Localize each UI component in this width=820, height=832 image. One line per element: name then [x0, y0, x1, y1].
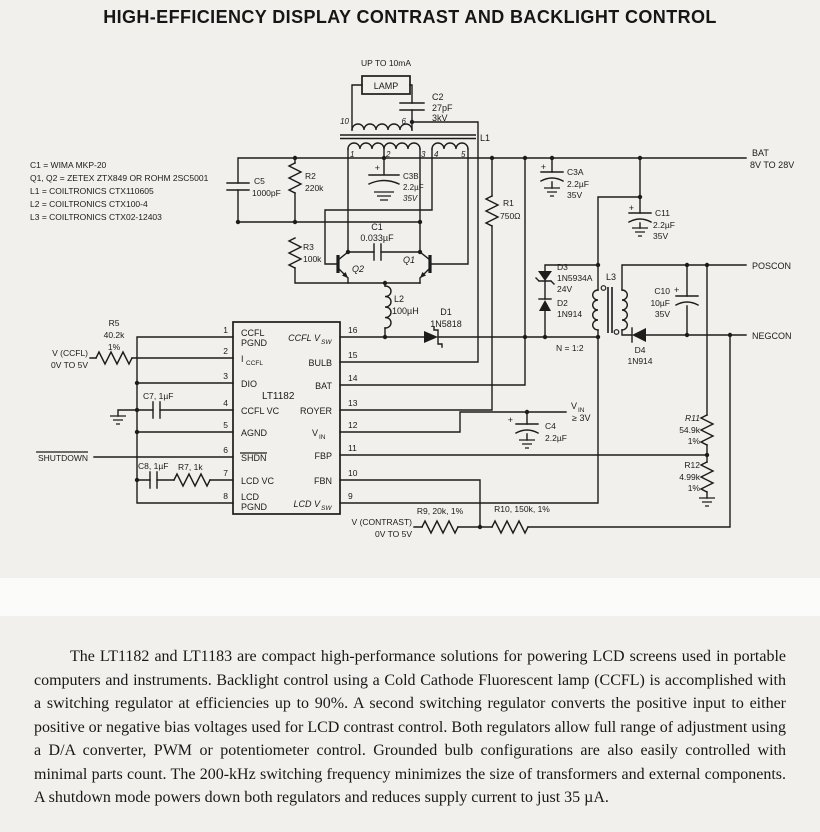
- pin-label: LCD: [241, 492, 260, 502]
- pin-label: LCD VC: [241, 476, 275, 486]
- pin-label: SHDN: [241, 453, 267, 463]
- pin-number: 16: [348, 325, 358, 335]
- ic-pin-numbers-right: 16 15 14 13 12 11 10 9: [348, 325, 358, 501]
- d2-part: 1N914: [557, 309, 582, 319]
- d4-ref: D4: [635, 345, 646, 355]
- r5-ref: R5: [109, 318, 120, 328]
- lamp-current-label: UP TO 10mA: [361, 58, 411, 68]
- description-paragraph: The LT1182 and LT1183 are compact high-p…: [0, 645, 820, 810]
- ic-pin-numbers-left: 1 2 3 4 5 6 7 8: [223, 325, 228, 501]
- schematic: LAMP UP TO 10mA LT1182 1 2 3 4 5 6 7 8 1…: [0, 0, 820, 580]
- poscon-label: POSCON: [752, 261, 791, 271]
- c3b-ref: C3B: [403, 172, 419, 181]
- pin-label-sub: SW: [321, 505, 332, 512]
- r11-ref: R11: [685, 413, 700, 423]
- l2-value: 100µH: [392, 306, 419, 316]
- pin-label-sub: SW: [321, 339, 332, 346]
- r1-value: 750Ω: [500, 211, 521, 221]
- r9-label: R9, 20k, 1%: [417, 506, 464, 516]
- pin-number: 9: [348, 491, 353, 501]
- c8-label: C8, 1µF: [138, 461, 168, 471]
- transistor-q1: [420, 255, 430, 283]
- c4-value: 2.2µF: [545, 433, 567, 443]
- pin-label: CCFL: [241, 328, 265, 338]
- c4-ref: C4: [545, 421, 556, 431]
- l1-pin10: 10: [340, 117, 349, 126]
- pin-label: PGND: [241, 338, 268, 348]
- d1-part: 1N5818: [430, 319, 462, 329]
- ic-pin-labels-right: CCFL V SW BULB BAT ROYER V IN FBP FBN LC…: [288, 333, 332, 512]
- c3b-plus: +: [375, 163, 380, 173]
- page-divider-band: [0, 578, 820, 616]
- l3-ratio: N = 1:2: [556, 343, 584, 353]
- r3-ref: R3: [303, 242, 314, 252]
- d1-ref: D1: [440, 307, 452, 317]
- transistor-q2: [338, 255, 348, 283]
- r12-value: 4.99k: [679, 472, 701, 482]
- l1-pin4: 4: [434, 150, 439, 159]
- phase-dot-icon: [614, 330, 619, 335]
- pin-label: AGND: [241, 428, 268, 438]
- c11-ref: C11: [655, 208, 670, 218]
- vccfl-label: V (CCFL): [52, 348, 88, 358]
- pin-number: 3: [223, 371, 228, 381]
- r3-value: 100k: [303, 254, 322, 264]
- pin-label: I: [241, 354, 244, 364]
- r5-value: 40.2k: [104, 330, 126, 340]
- pin-number: 6: [223, 445, 228, 455]
- vccfl-range: 0V TO 5V: [51, 360, 88, 370]
- pin-label: DIO: [241, 379, 257, 389]
- pin-label-sub: CCFL: [246, 360, 263, 367]
- vcontrast-label: V (CONTRAST): [352, 517, 413, 527]
- l1-pin6: 6: [402, 117, 407, 126]
- note-line: L2 = COILTRONICS CTX100-4: [30, 199, 148, 209]
- transformer-l1: [340, 124, 476, 149]
- c3a-plus: +: [541, 162, 546, 172]
- note-line: L1 = COILTRONICS CTX110605: [30, 186, 154, 196]
- c10-ref: C10: [654, 286, 670, 296]
- l1-pin2: 2: [385, 150, 391, 159]
- l3-ref: L3: [606, 272, 616, 282]
- c10-rating: 35V: [655, 309, 670, 319]
- c2-value: 27pF: [432, 103, 453, 113]
- c11-plus: +: [629, 203, 634, 213]
- negcon-label: NEGCON: [752, 331, 792, 341]
- transformer-l3: [593, 286, 628, 335]
- l1-pin3: 3: [421, 150, 426, 159]
- r11-tol: 1%: [688, 436, 701, 446]
- c3b-value: 2.2µF: [403, 183, 424, 192]
- pin-label-sub: IN: [319, 434, 326, 441]
- lamp-label: LAMP: [374, 81, 399, 91]
- c5-value: 1000pF: [252, 188, 281, 198]
- pin-label: CCFL V: [288, 333, 321, 343]
- pin-label: BAT: [315, 381, 332, 391]
- pin-number: 1: [223, 325, 228, 335]
- d3-rating: 24V: [557, 284, 572, 294]
- diode-d4: [632, 328, 646, 342]
- note-line: Q1, Q2 = ZETEX ZTX849 OR ROHM 2SC5001: [30, 173, 209, 183]
- vcontrast-range: 0V TO 5V: [375, 529, 412, 539]
- note-line: L3 = COILTRONICS CTX02-12403: [30, 212, 162, 222]
- component-labels: C2 27pF 3kV 10 6 1 2 3 4 5 L1 C5 1000pF …: [104, 92, 701, 516]
- c3b-rating: 35V: [403, 194, 418, 203]
- pin-number: 14: [348, 373, 358, 383]
- phase-dot-icon: [601, 286, 606, 291]
- diode-d2: [539, 299, 551, 311]
- inductor-l2: [385, 286, 391, 328]
- parts-notes: C1 = WIMA MKP-20 Q1, Q2 = ZETEX ZTX849 O…: [30, 160, 209, 222]
- c3a-rating: 35V: [567, 190, 582, 200]
- r7-label: R7, 1k: [178, 462, 203, 472]
- r5-tol: 1%: [108, 342, 121, 352]
- pin-number: 10: [348, 468, 358, 478]
- bat-label: BAT: [752, 148, 769, 158]
- r11-value: 54.9k: [679, 425, 701, 435]
- r12-ref: R12: [684, 460, 700, 470]
- c11-value: 2.2µF: [653, 220, 675, 230]
- pin-label: BULB: [308, 358, 332, 368]
- pin-label: FBN: [314, 476, 332, 486]
- c7-label: C7, 1µF: [143, 391, 173, 401]
- c10-value: 10µF: [650, 298, 670, 308]
- ground-symbols: [110, 188, 715, 506]
- d3-part: 1N5934A: [557, 273, 593, 283]
- c1-value: 0.033µF: [360, 233, 394, 243]
- resistor-symbols: [96, 163, 713, 533]
- pin-number: 8: [223, 491, 228, 501]
- pin-label: LCD V: [293, 499, 321, 509]
- c1-ref: C1: [371, 222, 383, 232]
- l1-ref: L1: [480, 133, 490, 143]
- c2-rating: 3kV: [432, 113, 448, 123]
- pin-number: 11: [348, 443, 357, 453]
- pin-number: 15: [348, 350, 358, 360]
- vin-label: V: [571, 401, 577, 411]
- pin-number: 5: [223, 420, 228, 430]
- r10-label: R10, 150k, 1%: [494, 504, 550, 514]
- pin-number: 12: [348, 420, 358, 430]
- pin-number: 2: [223, 346, 228, 356]
- d3-ref: D3: [557, 262, 568, 272]
- c11-rating: 35V: [653, 231, 668, 241]
- note-line: C1 = WIMA MKP-20: [30, 160, 107, 170]
- c2-ref: C2: [432, 92, 444, 102]
- r1-ref: R1: [503, 198, 514, 208]
- c4-plus: +: [508, 415, 513, 425]
- r12-tol: 1%: [688, 483, 701, 493]
- l1-pin1: 1: [350, 150, 354, 159]
- pin-label: V: [312, 428, 318, 438]
- c10-plus: +: [674, 285, 679, 295]
- ic-pin-labels-left: CCFL PGND I CCFL DIO CCFL VC AGND SHDN L…: [240, 328, 280, 512]
- d4-part: 1N914: [627, 356, 652, 366]
- pin-label: FBP: [314, 451, 332, 461]
- d2-ref: D2: [557, 298, 568, 308]
- c3a-ref: C3A: [567, 167, 584, 177]
- c5-ref: C5: [254, 176, 265, 186]
- ic-name: LT1182: [262, 391, 295, 402]
- pin-number: 13: [348, 398, 358, 408]
- r2-value: 220k: [305, 183, 324, 193]
- c3a-value: 2.2µF: [567, 179, 589, 189]
- q1-ref: Q1: [403, 255, 415, 265]
- shutdown-label: SHUTDOWN: [38, 453, 88, 463]
- q2-ref: Q2: [352, 264, 364, 274]
- pin-number: 4: [223, 398, 228, 408]
- pin-label: PGND: [241, 502, 268, 512]
- l2-ref: L2: [394, 294, 404, 304]
- vin-cond: ≥ 3V: [572, 413, 590, 423]
- pin-label: ROYER: [300, 406, 333, 416]
- bat-range: 8V TO 28V: [750, 160, 794, 170]
- pin-label: CCFL VC: [241, 406, 280, 416]
- pin-number: 7: [223, 468, 228, 478]
- l1-pin5: 5: [461, 150, 466, 159]
- r2-ref: R2: [305, 171, 316, 181]
